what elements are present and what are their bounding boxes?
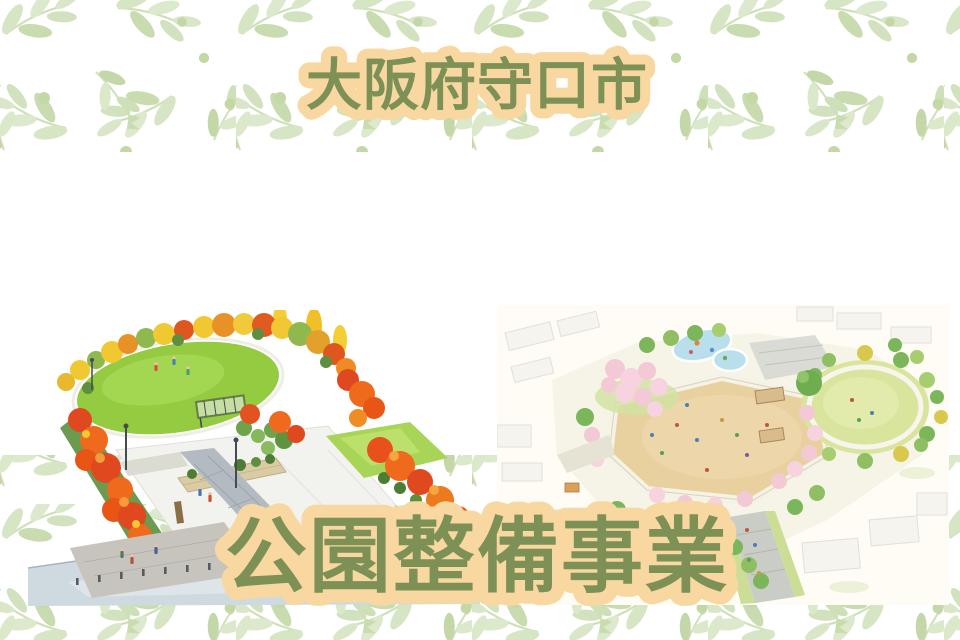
right-upper-trees — [337, 369, 385, 427]
title-bottom: 公園整備事業 — [0, 482, 960, 632]
poster: 大阪府守口市 公園整備事業 — [0, 0, 960, 640]
title-bottom-text: 公園整備事業 — [225, 510, 729, 605]
title-top: 大阪府守口市 — [0, 28, 960, 144]
illustration-panel — [0, 152, 960, 455]
title-top-text: 大阪府守口市 — [306, 54, 648, 119]
central-tree — [796, 370, 822, 396]
